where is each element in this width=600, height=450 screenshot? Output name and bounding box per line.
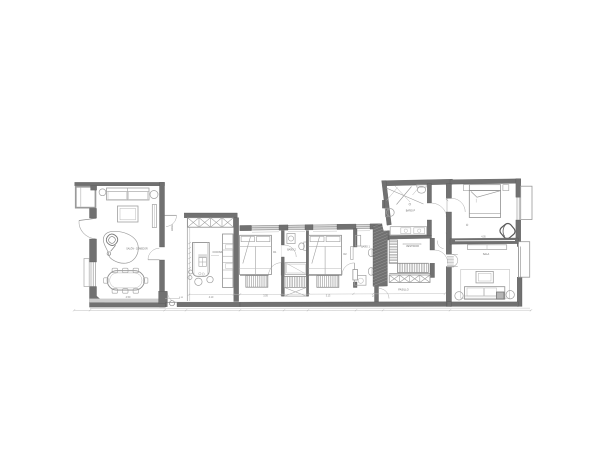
svg-text:SALA: SALA <box>483 252 490 256</box>
svg-text:3.13: 3.13 <box>326 295 331 297</box>
svg-text:HALL: HALL <box>170 224 174 231</box>
svg-text:SALÓN - COMEDOR: SALÓN - COMEDOR <box>126 247 148 250</box>
svg-text:COCINA: COCINA <box>213 250 223 254</box>
svg-text:PASILLO: PASILLO <box>398 288 408 292</box>
svg-text:4.50: 4.50 <box>126 296 131 299</box>
svg-text:4.05: 4.05 <box>481 236 486 238</box>
svg-text:2.15: 2.15 <box>372 296 377 298</box>
svg-text:BAÑO 2: BAÑO 2 <box>287 248 296 251</box>
svg-text:4.10: 4.10 <box>209 297 214 299</box>
svg-text:3.05: 3.05 <box>263 296 268 298</box>
svg-text:BAÑO P: BAÑO P <box>406 210 416 213</box>
svg-text:BAÑO 1: BAÑO 1 <box>361 246 370 249</box>
